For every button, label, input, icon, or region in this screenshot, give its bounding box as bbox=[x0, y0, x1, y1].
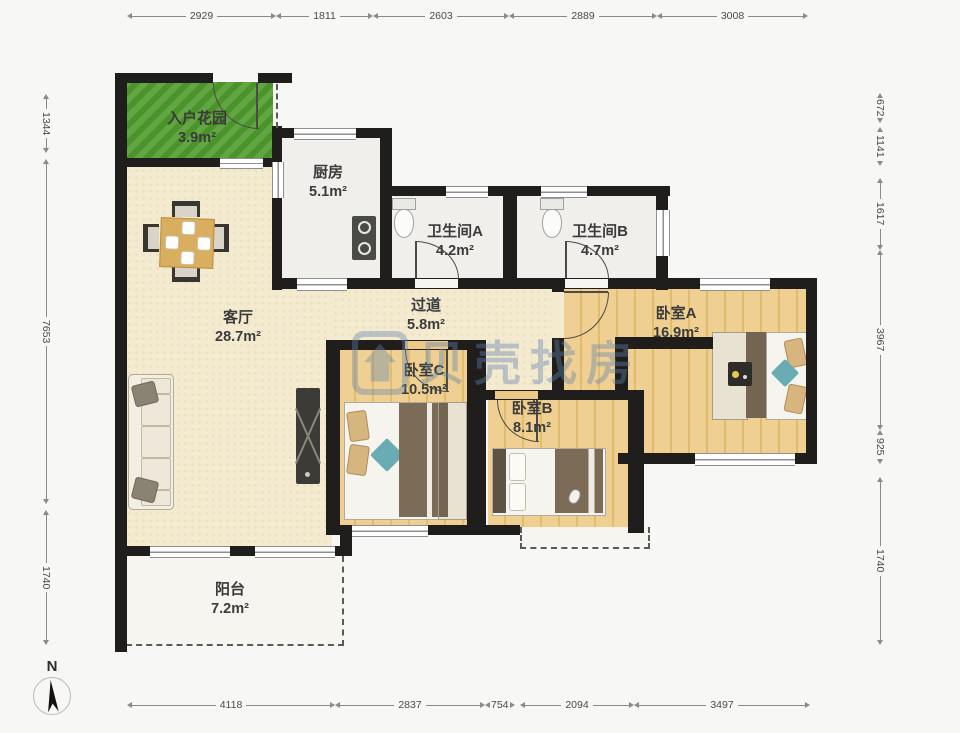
bathA-top-window bbox=[446, 186, 488, 198]
balcony-area: 7.2m² bbox=[211, 599, 249, 618]
dim-right-672: 672 bbox=[874, 93, 886, 127]
bathA-toilet bbox=[392, 198, 416, 238]
dim-top-3008: 3008 bbox=[657, 10, 808, 22]
bedA-door-leaf bbox=[564, 291, 608, 293]
garden-name: 入户花园 bbox=[167, 109, 227, 129]
kitchen-area: 5.1m² bbox=[309, 182, 347, 201]
bedA-top-window bbox=[700, 278, 770, 291]
bedA-bed bbox=[766, 332, 810, 420]
dim-label: 1811 bbox=[309, 10, 340, 22]
label-hall: 过道 5.8m² bbox=[407, 296, 445, 334]
bathA-door-gap bbox=[415, 279, 458, 288]
kitchen-pass-window bbox=[272, 162, 284, 198]
wall-kitchen-west bbox=[272, 126, 282, 290]
dining-chair-north bbox=[172, 201, 200, 217]
dining-chair-east bbox=[213, 224, 229, 252]
dim-label: 3967 bbox=[874, 325, 886, 354]
dim-label: 3497 bbox=[706, 699, 737, 711]
wall-step-connector bbox=[340, 525, 352, 556]
dim-label: 3008 bbox=[717, 10, 748, 22]
bathB-door-gap bbox=[565, 279, 608, 288]
bedB-area: 8.1m² bbox=[512, 418, 553, 437]
bedA-area: 16.9m² bbox=[653, 323, 699, 342]
wall-top-left bbox=[115, 73, 213, 83]
sofa bbox=[128, 374, 174, 510]
dining-chair-south bbox=[172, 266, 200, 282]
bedA-bottom-window bbox=[695, 453, 795, 466]
kitchen-top-window bbox=[294, 128, 356, 140]
wall-bedA-east bbox=[806, 278, 817, 464]
bathB-name: 卫生间B bbox=[572, 222, 628, 242]
bedA-name: 卧室A bbox=[653, 304, 699, 324]
dim-label: 1740 bbox=[874, 546, 886, 575]
wall-bath-top bbox=[380, 186, 670, 196]
tv-console bbox=[296, 388, 320, 484]
label-living: 客厅 28.7m² bbox=[215, 308, 261, 346]
watermark-text: 贝壳找房 bbox=[418, 340, 642, 387]
living-bottom-window-b bbox=[255, 546, 335, 558]
bathB-area: 4.7m² bbox=[572, 241, 628, 260]
dim-label: 1617 bbox=[874, 199, 886, 228]
dim-left-7653: 7653 bbox=[40, 159, 52, 504]
dim-label: 4118 bbox=[216, 699, 247, 711]
dim-right-1141: 1141 bbox=[874, 127, 886, 178]
bathA-door-leaf bbox=[415, 241, 417, 278]
label-bathB: 卫生间B 4.7m² bbox=[572, 222, 628, 260]
dim-label: 1344 bbox=[40, 109, 52, 138]
balcony-name: 阳台 bbox=[211, 580, 249, 600]
kitchen-slider bbox=[297, 278, 347, 291]
bedB-bed bbox=[492, 448, 606, 516]
north-label: N bbox=[28, 658, 76, 675]
dim-top-2889: 2889 bbox=[509, 10, 657, 22]
wall-kitchen-east bbox=[380, 128, 392, 278]
bedB-name: 卧室B bbox=[512, 399, 553, 419]
dim-right-1740: 1740 bbox=[874, 477, 886, 645]
compass-ring bbox=[33, 677, 71, 715]
wall-bath-divider bbox=[503, 196, 517, 278]
dim-right-1617: 1617 bbox=[874, 178, 886, 250]
label-garden: 入户花园 3.9m² bbox=[167, 109, 227, 147]
dim-label: 7653 bbox=[40, 317, 52, 346]
dim-label: 754 bbox=[490, 699, 510, 711]
dim-bottom-3497: 3497 bbox=[634, 699, 810, 711]
dim-right-3967: 3967 bbox=[874, 250, 886, 430]
dim-top-1811: 1811 bbox=[276, 10, 373, 22]
living-area: 28.7m² bbox=[215, 327, 261, 346]
dining-chair-west bbox=[143, 224, 159, 252]
dining-table bbox=[159, 217, 215, 269]
garden-door-leaf bbox=[256, 83, 258, 128]
label-bedA: 卧室A 16.9m² bbox=[653, 304, 699, 342]
dim-label: 2603 bbox=[425, 10, 456, 22]
kitchen-name: 厨房 bbox=[309, 163, 347, 183]
bathB-door-leaf bbox=[565, 241, 567, 278]
bedC-bottom-window bbox=[352, 525, 428, 537]
wall-bedC-west bbox=[326, 340, 340, 535]
garden-area: 3.9m² bbox=[167, 128, 227, 147]
bathA-name: 卫生间A bbox=[427, 222, 483, 242]
bedC-wardrobe bbox=[438, 402, 467, 520]
wall-garden-bottom-a bbox=[124, 158, 220, 167]
bedA-tv bbox=[728, 362, 752, 386]
hall-name: 过道 bbox=[407, 296, 445, 316]
dim-left-1740: 1740 bbox=[40, 510, 52, 645]
wall-bedB-east bbox=[628, 390, 644, 533]
dim-top-2603: 2603 bbox=[373, 10, 509, 22]
bedC-bed bbox=[344, 402, 446, 520]
dim-bottom-4118: 4118 bbox=[127, 699, 335, 711]
dim-label: 2889 bbox=[567, 10, 598, 22]
garden-bottom-window bbox=[220, 158, 263, 169]
dim-label: 2929 bbox=[186, 10, 217, 22]
living-bottom-window-a bbox=[150, 546, 230, 558]
dim-label: 2837 bbox=[394, 699, 425, 711]
dim-bottom-2094: 2094 bbox=[520, 699, 634, 711]
dim-label: 672 bbox=[874, 98, 886, 118]
house-logo-icon bbox=[352, 331, 408, 395]
bathB-top-window bbox=[541, 186, 587, 198]
dim-bottom-754: 754 bbox=[485, 699, 520, 711]
label-kitchen: 厨房 5.1m² bbox=[309, 163, 347, 201]
dim-label: 1141 bbox=[874, 132, 886, 161]
label-bathA: 卫生间A 4.2m² bbox=[427, 222, 483, 260]
bathA-area: 4.2m² bbox=[427, 241, 483, 260]
watermark: 贝壳找房 bbox=[352, 331, 642, 395]
garden-open-dashed bbox=[276, 84, 278, 128]
living-name: 客厅 bbox=[215, 308, 261, 328]
label-balcony: 阳台 7.2m² bbox=[211, 580, 249, 618]
bathB-east-window bbox=[656, 210, 670, 256]
dim-label: 2094 bbox=[561, 699, 592, 711]
kitchen-stove bbox=[352, 216, 376, 260]
dim-top-2929: 2929 bbox=[127, 10, 276, 22]
dim-label: 925 bbox=[874, 435, 886, 459]
north-compass: N bbox=[28, 658, 76, 715]
dim-bottom-2837: 2837 bbox=[335, 699, 485, 711]
dim-label: 1740 bbox=[40, 563, 52, 592]
wall-top-block bbox=[258, 73, 292, 83]
label-bedB: 卧室B 8.1m² bbox=[512, 399, 553, 437]
dim-right-925: 925 bbox=[874, 430, 886, 477]
bathB-toilet bbox=[540, 198, 564, 238]
north-arrow-icon bbox=[44, 679, 61, 712]
dim-left-1344: 1344 bbox=[40, 94, 52, 153]
floor-plan-canvas: 入户花园 3.9m² 厨房 5.1m² 卫生间A 4.2m² 卫生间B 4.7m… bbox=[0, 0, 960, 733]
